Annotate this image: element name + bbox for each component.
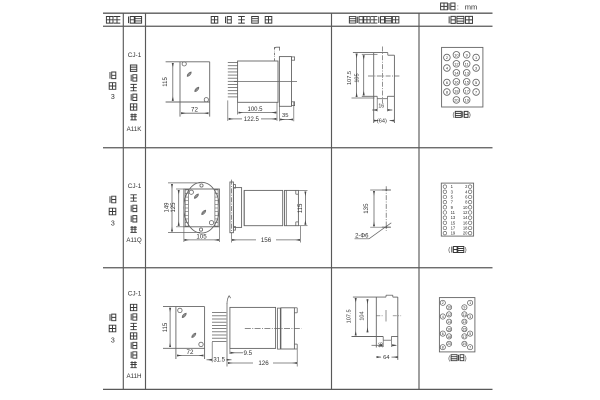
svg-text:A11H: A11H (126, 373, 141, 380)
svg-text::: : (457, 4, 459, 11)
svg-text:7: 7 (475, 90, 477, 95)
svg-text:10: 10 (447, 306, 451, 310)
svg-text:CJ-1: CJ-1 (128, 183, 142, 190)
svg-text:149: 149 (165, 202, 171, 213)
svg-text:35: 35 (282, 113, 288, 119)
svg-text:20: 20 (463, 231, 468, 236)
svg-text:2-Φ6: 2-Φ6 (355, 233, 369, 239)
svg-text:6: 6 (446, 80, 448, 85)
svg-text:115: 115 (163, 322, 169, 332)
svg-text:6: 6 (442, 332, 444, 336)
svg-text:107.5: 107.5 (347, 71, 353, 85)
svg-text:115: 115 (163, 77, 169, 87)
svg-text:A11Q: A11Q (126, 237, 142, 244)
svg-text:15: 15 (462, 328, 466, 332)
svg-text:1: 1 (475, 55, 477, 60)
svg-text:10: 10 (454, 52, 459, 57)
svg-text:3: 3 (111, 221, 115, 228)
svg-text:(: ( (448, 356, 450, 362)
svg-text:16: 16 (447, 328, 451, 332)
svg-text:13: 13 (462, 320, 466, 324)
svg-text:CJ-1: CJ-1 (128, 290, 142, 297)
svg-text:104: 104 (359, 311, 365, 320)
svg-text:17: 17 (465, 88, 469, 93)
svg-text:31.5: 31.5 (213, 358, 225, 364)
svg-text:107.5: 107.5 (347, 309, 353, 323)
svg-text:2: 2 (446, 55, 448, 60)
svg-text:115: 115 (298, 203, 304, 213)
svg-text:7: 7 (469, 346, 471, 350)
svg-text:16: 16 (454, 79, 458, 84)
svg-text:): ) (465, 356, 467, 362)
svg-text:3: 3 (475, 66, 477, 71)
svg-text:135: 135 (363, 203, 370, 214)
svg-text:20: 20 (447, 342, 451, 346)
svg-text:19: 19 (462, 342, 466, 346)
svg-text:72: 72 (187, 349, 194, 356)
svg-text:126: 126 (258, 360, 269, 367)
svg-text:9: 9 (466, 52, 468, 57)
svg-text:64: 64 (383, 355, 390, 361)
svg-text:156: 156 (261, 237, 272, 244)
svg-text:3: 3 (111, 94, 115, 101)
svg-text:3: 3 (111, 337, 115, 344)
svg-text:8: 8 (446, 90, 448, 95)
svg-text:2: 2 (442, 301, 444, 305)
svg-text:19: 19 (465, 97, 469, 102)
svg-text:17: 17 (462, 335, 466, 339)
svg-text:9.5: 9.5 (244, 350, 253, 357)
svg-text:5: 5 (469, 332, 471, 336)
svg-text:): ) (469, 113, 471, 119)
svg-text:14: 14 (447, 320, 451, 324)
svg-text:A11K: A11K (127, 126, 143, 133)
svg-text:3: 3 (469, 315, 471, 319)
svg-text:mm: mm (465, 2, 478, 11)
svg-text:16: 16 (378, 103, 384, 109)
svg-text:105: 105 (196, 233, 207, 240)
svg-text:20: 20 (454, 97, 459, 102)
svg-text:105: 105 (354, 73, 360, 82)
svg-text:12: 12 (454, 61, 458, 66)
svg-text:8: 8 (442, 346, 444, 350)
svg-text:4: 4 (442, 315, 444, 319)
svg-text:72: 72 (191, 107, 198, 114)
svg-text:(: ( (448, 248, 450, 254)
svg-text:11: 11 (465, 61, 469, 66)
svg-text:125: 125 (171, 202, 177, 213)
svg-text:16: 16 (379, 342, 385, 348)
svg-text:9: 9 (463, 306, 465, 310)
svg-text:5: 5 (475, 80, 477, 85)
svg-text:100.5: 100.5 (247, 107, 263, 113)
svg-text:13: 13 (465, 70, 469, 75)
svg-text:4: 4 (446, 66, 449, 71)
svg-text:18: 18 (447, 335, 451, 339)
svg-text:11: 11 (463, 313, 467, 317)
svg-text:18: 18 (454, 88, 458, 93)
svg-text:12: 12 (447, 313, 451, 317)
svg-text:(64): (64) (377, 119, 387, 125)
svg-text:122.5: 122.5 (244, 117, 260, 123)
svg-text:15: 15 (465, 79, 469, 84)
svg-text:): ) (465, 248, 467, 254)
svg-text:(: ( (453, 113, 455, 119)
svg-text:1: 1 (469, 301, 471, 305)
svg-text:19: 19 (451, 231, 456, 236)
svg-text:14: 14 (454, 70, 459, 75)
svg-text:CJ-1: CJ-1 (128, 52, 142, 59)
